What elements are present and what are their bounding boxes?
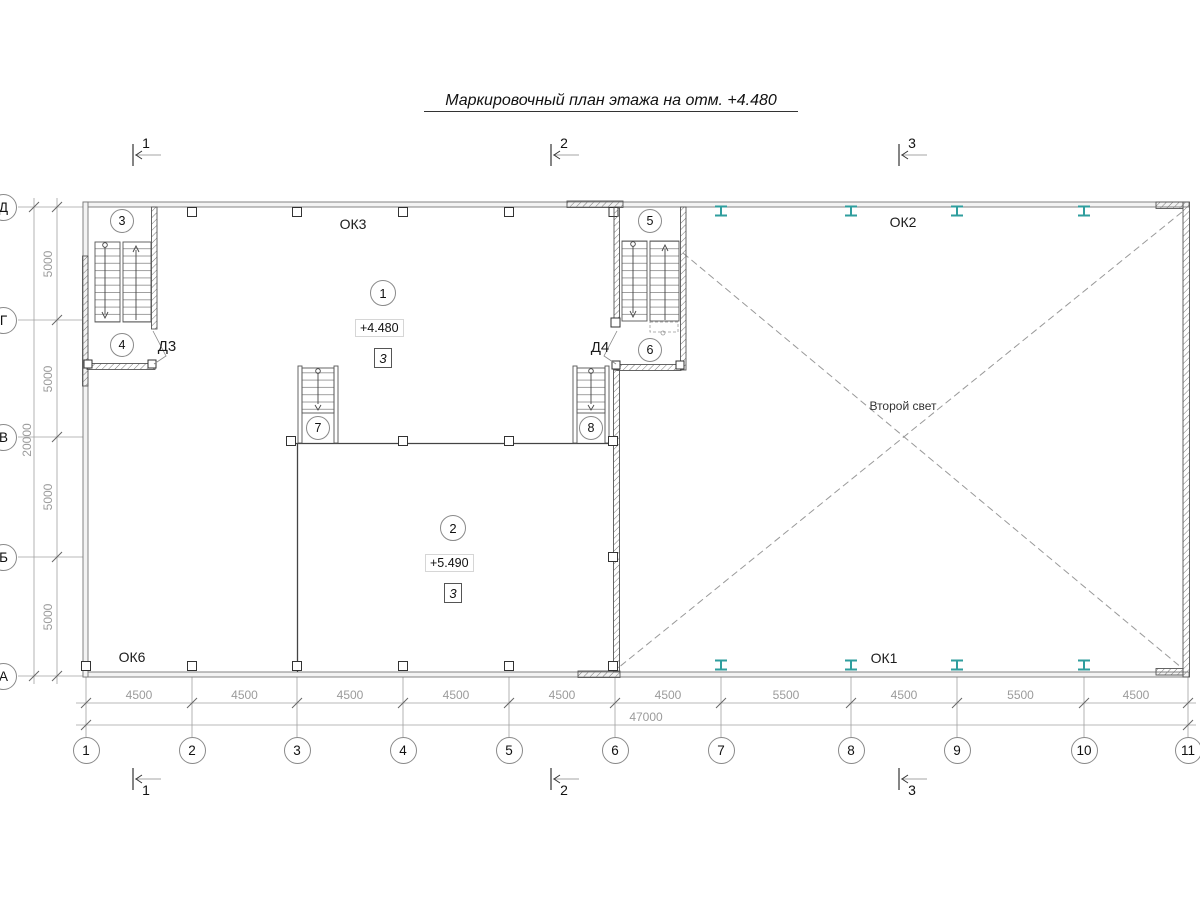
dim-segment: 4500: [426, 688, 486, 702]
window-label-ok2: ОК2: [873, 214, 933, 230]
axis-bubble-3: 3: [284, 737, 311, 764]
section-label-top-3: 3: [904, 135, 920, 151]
doc-ref-box-2: 3: [444, 583, 462, 603]
axis-bubble-11: 11: [1175, 737, 1200, 764]
second-light-cross: [618, 212, 1182, 668]
stair-core-left: [83, 207, 158, 386]
dim-total-bottom: 47000: [616, 710, 676, 724]
dim-segment: 5500: [991, 688, 1051, 702]
steel-column-icons: [715, 207, 1090, 670]
axis-bubble-4: 4: [390, 737, 417, 764]
window-label-ok3: ОК3: [323, 216, 383, 232]
room-bubble-1: 1: [370, 280, 396, 306]
section-label-top-2: 2: [556, 135, 572, 151]
drawing-title: Маркировочный план этажа на отм. +4.480: [424, 92, 798, 112]
dim-segment: 5000: [41, 467, 55, 527]
doc-ref-box-1: 3: [374, 348, 392, 368]
dim-segment: 5500: [756, 688, 816, 702]
door-label-d4: Д4: [580, 339, 620, 356]
elevation-mark-1: +4.480: [355, 319, 404, 337]
dim-segment: 4500: [109, 688, 169, 702]
axis-bubble-10: 10: [1071, 737, 1098, 764]
section-label-bottom-1: 1: [138, 782, 154, 798]
window-label-ok6: ОК6: [102, 649, 162, 665]
room-bubble-2: 2: [440, 515, 466, 541]
stair-bubble-5: 5: [638, 209, 662, 233]
axis-bubble-8: 8: [838, 737, 865, 764]
section-label-bottom-2: 2: [556, 782, 572, 798]
dim-segment: 4500: [215, 688, 275, 702]
stair-bubble-4: 4: [110, 333, 134, 357]
dim-segment: 4500: [320, 688, 380, 702]
column-squares: [82, 208, 618, 671]
dim-segment: 4500: [1106, 688, 1166, 702]
elevation-mark-2: +5.490: [425, 554, 474, 572]
dim-segment: 4500: [874, 688, 934, 702]
axis-bubble-2: 2: [179, 737, 206, 764]
axis-bubble-1: 1: [73, 737, 100, 764]
axis-bubble-9: 9: [944, 737, 971, 764]
stair-bubble-8: 8: [579, 416, 603, 440]
stair-bubble-3: 3: [110, 209, 134, 233]
plan-drawing: [0, 0, 1200, 900]
stair-bubble-6: 6: [638, 338, 662, 362]
axis-bubble-5: 5: [496, 737, 523, 764]
dim-segment: 4500: [532, 688, 592, 702]
floor-plan-canvas: Маркировочный план этажа на отм. +4.480 …: [0, 0, 1200, 900]
dim-segment: 5000: [41, 587, 55, 647]
dim-segment: 5000: [41, 234, 55, 294]
section-label-bottom-3: 3: [904, 782, 920, 798]
dim-total-left: 20000: [20, 410, 34, 470]
axis-bubble-6: 6: [602, 737, 629, 764]
dimension-ticks: [29, 202, 1193, 730]
window-label-ok1: ОК1: [854, 650, 914, 666]
second-light-note: Второй свет: [853, 399, 953, 413]
stair-bubble-7: 7: [306, 416, 330, 440]
door-label-d3: Д3: [147, 338, 187, 355]
axis-bubble-7: 7: [708, 737, 735, 764]
section-label-top-1: 1: [138, 135, 154, 151]
grid-and-dimension-lines: [18, 198, 1196, 737]
dim-segment: 5000: [41, 349, 55, 409]
dim-segment: 4500: [638, 688, 698, 702]
